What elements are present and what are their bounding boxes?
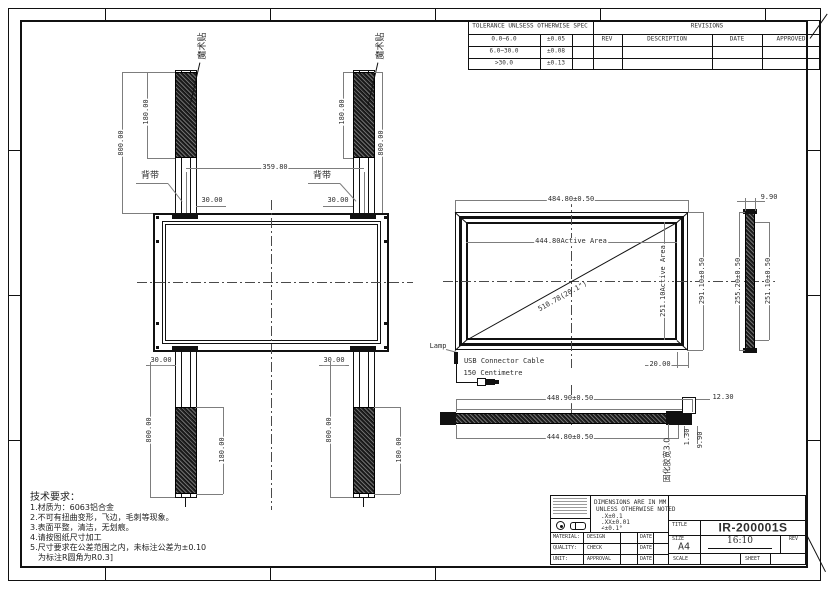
screw-mark <box>156 240 159 243</box>
extension-line <box>364 172 365 213</box>
tolerance-range: 6.0~30.0 <box>489 49 520 56</box>
strap-clip <box>350 346 376 351</box>
extension-line <box>688 200 689 212</box>
sheet-size: A4 <box>677 542 691 553</box>
title-block-line <box>770 553 771 565</box>
dim-strap-length: 800.00 <box>378 129 386 156</box>
table-line <box>622 34 623 70</box>
title-block-line <box>653 532 654 565</box>
proprietary-notice <box>553 498 587 515</box>
side-profile-cap <box>743 348 757 353</box>
tolerance-value: ±0.13 <box>546 61 566 68</box>
dim-velcro-length: 180.00 <box>219 436 227 463</box>
extension-line <box>678 425 679 439</box>
strap-line <box>363 497 364 507</box>
aspect-ratio: 16:10 <box>726 537 754 547</box>
date-label: DATE <box>639 557 653 563</box>
center-line <box>271 200 272 510</box>
title-block-line <box>780 535 781 553</box>
dim-strap-length: 800.00 <box>326 416 334 443</box>
extension-line <box>755 340 769 341</box>
dim-line <box>319 365 349 366</box>
extension-line <box>745 198 746 211</box>
extension-line <box>688 352 689 368</box>
profile-line <box>456 409 686 410</box>
strap-label: 背带 <box>140 172 160 182</box>
border-tick <box>435 568 436 581</box>
part-number: IR-200001S <box>717 521 788 534</box>
velcro-hatch <box>175 407 197 494</box>
strap-clip <box>172 214 198 219</box>
border-tick <box>8 440 21 441</box>
profile-end-cap <box>440 412 456 425</box>
usb-connector-icon <box>477 378 486 386</box>
screw-mark <box>384 322 387 325</box>
strap-line <box>175 70 197 71</box>
extension-line <box>150 497 175 498</box>
dim-note: ∠±0.1° <box>600 526 624 533</box>
extension-line <box>196 494 223 495</box>
revisions-title: REVISIONS <box>690 24 725 31</box>
title-block-line <box>590 495 591 532</box>
table-line <box>468 34 820 35</box>
strap-line <box>353 497 375 498</box>
tolerance-table-title: TOLERANCE UNLSESS OTHERWISE SPEC <box>471 24 589 31</box>
velcro-hatch <box>353 407 375 494</box>
extension-line <box>343 158 353 159</box>
screw-mark <box>384 240 387 243</box>
border-tick <box>105 568 106 581</box>
extension-line <box>196 407 223 408</box>
strap-line <box>353 70 375 71</box>
lamp-label: Lamp <box>429 343 448 351</box>
tolerance-value: ±0.08 <box>546 49 566 56</box>
title-block-line <box>583 532 584 565</box>
leader-line <box>308 183 340 184</box>
extension-line <box>147 158 175 159</box>
material-label: MATERIAL: <box>552 535 581 541</box>
title-block-line <box>668 553 806 554</box>
dim-side-active-height: 251.10±0.50 <box>765 257 773 305</box>
dim-profile-active-width: 444.80±0.50 <box>546 434 594 442</box>
dim-a: 1.30 <box>684 428 692 447</box>
screw-mark <box>156 322 159 325</box>
tolerance-value: ±0.05 <box>546 37 566 44</box>
dim-strap-spacing: 359.80 <box>261 164 288 172</box>
usb-cable-label: USB Connector Cable <box>463 358 545 366</box>
screw-mark <box>156 216 159 219</box>
extension-line <box>122 213 153 214</box>
title-block-line <box>550 554 668 555</box>
notes-title: 技术要求： <box>30 488 80 503</box>
border-tick <box>808 440 821 441</box>
design-label: DESIGN <box>586 535 606 541</box>
leader-line <box>136 183 168 184</box>
extension-line <box>688 212 703 213</box>
rev-label: REV <box>788 537 799 543</box>
border-tick <box>808 295 821 296</box>
table-line <box>712 34 713 70</box>
dim-velcro-length: 180.00 <box>339 98 347 125</box>
screw-mark <box>384 216 387 219</box>
projection-symbol-icon <box>560 525 563 528</box>
title-block-line <box>637 532 638 565</box>
revisions-col-description: DESCRIPTION <box>646 37 688 44</box>
title-block-line <box>700 520 701 565</box>
dim-strap-offset: 30.00 <box>149 357 172 365</box>
dim-active-height: 251.10Active Area <box>660 244 668 318</box>
drawing-sheet: TOLERANCE UNLSESS OTHERWISE SPEC 0.0~6.0… <box>0 0 830 590</box>
screw-mark <box>156 346 159 349</box>
glue-width-label: 固化胶宽3.0 <box>664 437 673 484</box>
sheet-label: SHEET <box>744 557 761 563</box>
extension-line <box>455 200 456 212</box>
border-tick <box>270 568 271 581</box>
unit-label: UNIT: <box>552 557 569 563</box>
dim-strap-length: 800.00 <box>146 416 154 443</box>
side-profile <box>745 212 755 350</box>
table-line <box>468 46 820 47</box>
dim-outer-width: 484.80±0.50 <box>547 196 595 204</box>
revisions-col-rev: REV <box>601 37 614 44</box>
extension-line <box>343 72 353 73</box>
extension-line <box>374 407 400 408</box>
table-line <box>468 58 820 59</box>
border-tick <box>808 150 821 151</box>
extension-line <box>456 399 457 412</box>
extension-line <box>122 72 175 73</box>
quality-label: QUALITY: <box>552 546 578 552</box>
extension-line <box>739 350 745 351</box>
extension-line <box>374 494 400 495</box>
extension-line <box>739 212 745 213</box>
table-line <box>593 20 594 70</box>
aspect-ratio-underline <box>708 548 772 549</box>
dim-thickness: 9.90 <box>760 194 779 202</box>
approval-label: APPROVAL <box>586 557 612 563</box>
title-block-line <box>550 543 668 544</box>
title-block-line <box>740 553 741 565</box>
extension-line <box>456 425 457 439</box>
dim-side-outer-height: 255.20±0.50 <box>735 257 743 305</box>
dim-velcro-length: 180.00 <box>143 98 151 125</box>
dim-active-width: 444.80Active Area <box>534 238 608 246</box>
usb-connector-icon <box>486 379 495 385</box>
inner-border <box>20 20 808 568</box>
usb-cable-stub <box>454 352 458 364</box>
center-line <box>571 197 572 368</box>
projection-symbol-icon <box>575 522 576 530</box>
border-tick <box>270 8 271 21</box>
tolerance-range: >30.0 <box>494 61 514 68</box>
extension-line <box>688 350 703 351</box>
border-tick <box>8 150 21 151</box>
extension-line <box>692 399 693 412</box>
center-line <box>137 282 413 283</box>
date-label: DATE <box>639 535 653 541</box>
scale-label: SCALE <box>672 557 689 563</box>
usb-cable-length-label: 150 Centimetre <box>462 370 523 378</box>
dim-strap-offset: 30.00 <box>322 357 345 365</box>
strap-clip <box>350 214 376 219</box>
title-block-line <box>550 518 590 519</box>
strap-clip <box>172 346 198 351</box>
dim-strap-offset: 30.00 <box>200 197 223 205</box>
dim-line <box>196 206 226 207</box>
table-line <box>540 34 541 70</box>
dim-line <box>323 206 353 207</box>
strap-line <box>185 497 186 507</box>
dim-profile-outer-width: 448.90±0.50 <box>546 395 594 403</box>
dim-b: 9.90 <box>697 431 705 450</box>
extension-line <box>330 497 353 498</box>
dim-corner: 20.00 <box>648 361 671 369</box>
note-line: 为标注R圆角为R0.3] <box>38 552 113 563</box>
velcro-label: 魔术贴 <box>199 31 209 60</box>
strap-label: 背带 <box>312 172 332 182</box>
extension-line <box>186 172 187 213</box>
center-line <box>443 281 775 282</box>
check-label: CHECK <box>586 546 603 552</box>
dim-outer-height: 291.10±0.50 <box>699 257 707 305</box>
usb-connector-icon <box>495 380 499 384</box>
title-block-line <box>620 532 621 565</box>
border-tick <box>8 295 21 296</box>
profile-bar <box>442 413 692 424</box>
extension-line <box>374 72 382 73</box>
dim-line <box>696 399 710 400</box>
border-tick <box>435 8 436 21</box>
usb-cable <box>456 382 478 383</box>
usb-cable <box>456 364 457 382</box>
table-line <box>572 34 573 70</box>
projection-symbol-icon <box>570 522 586 530</box>
extension-line <box>755 222 769 223</box>
dim-tab-height: 12.30 <box>711 394 734 402</box>
tolerance-range: 0.0~6.0 <box>490 37 517 44</box>
dim-strap-offset: 30.00 <box>326 197 349 205</box>
dim-velcro-length: 180.00 <box>396 436 404 463</box>
revisions-col-approved: APPROVED <box>776 37 807 44</box>
velcro-label: 魔术贴 <box>377 31 387 60</box>
strap-line <box>175 497 197 498</box>
border-tick <box>105 8 106 21</box>
title-label: TITLE <box>671 523 688 529</box>
revisions-col-date: DATE <box>729 37 745 44</box>
extension-line <box>755 198 756 211</box>
dim-strap-length: 800.00 <box>118 129 126 156</box>
screw-mark <box>384 346 387 349</box>
table-line <box>762 34 763 70</box>
date-label: DATE <box>639 546 653 552</box>
